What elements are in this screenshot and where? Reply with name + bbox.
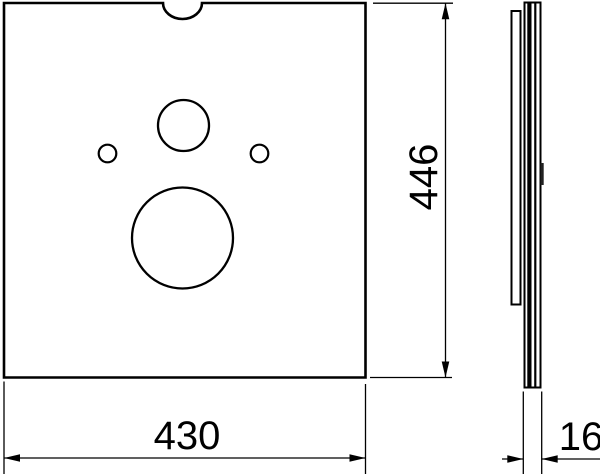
- mounting-tab: [541, 163, 544, 185]
- panel-core-band: [527, 3, 531, 388]
- dimension-height: 446: [370, 3, 453, 377]
- panel-profile: [525, 3, 541, 388]
- insulation-layer: [512, 11, 521, 305]
- dimension-height-label: 446: [402, 144, 446, 211]
- dimension-thickness-label: 16: [559, 415, 600, 459]
- dimension-width-label: 430: [154, 414, 221, 458]
- arrowhead-left-icon: [4, 454, 20, 462]
- technical-drawing-page: 430 446 16: [0, 0, 600, 474]
- arrowhead-right-icon: [350, 454, 366, 462]
- front-view: [4, 3, 366, 378]
- side-view: [512, 3, 544, 388]
- arrowhead-down-icon: [442, 362, 450, 378]
- arrowhead-inward-left-icon: [507, 455, 523, 463]
- panel-outline: [4, 3, 366, 378]
- dimension-thickness: 16: [502, 392, 600, 474]
- arrowhead-inward-right-icon: [542, 455, 558, 463]
- dimension-width: 430: [4, 382, 366, 474]
- technical-drawing: 430 446 16: [0, 0, 600, 474]
- arrowhead-up-icon: [442, 3, 450, 19]
